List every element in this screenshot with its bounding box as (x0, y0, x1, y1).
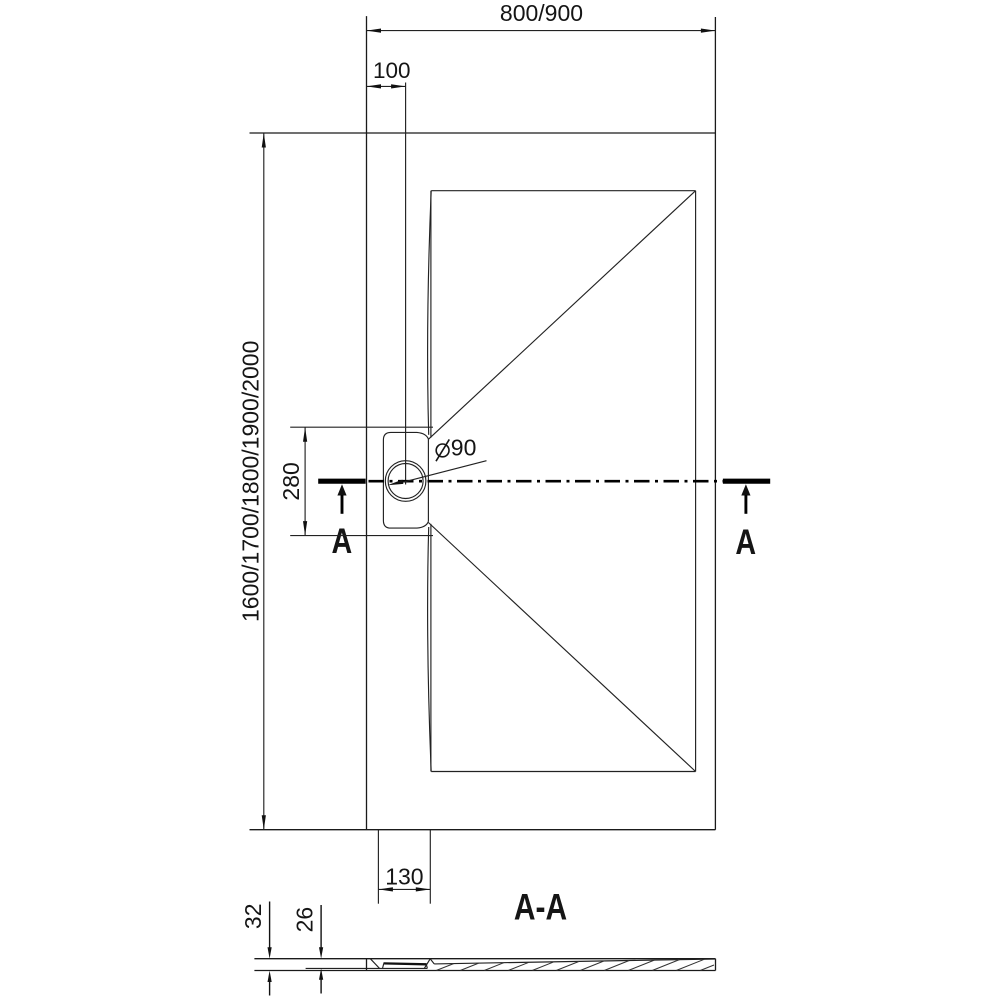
svg-text:32: 32 (240, 904, 266, 930)
svg-text:100: 100 (373, 58, 411, 83)
svg-text:1600/1700/1800/1900/2000: 1600/1700/1800/1900/2000 (238, 341, 264, 622)
svg-text:130: 130 (385, 863, 423, 889)
svg-text:800/900: 800/900 (500, 0, 583, 26)
svg-text:90: 90 (451, 434, 477, 460)
svg-text:26: 26 (292, 907, 318, 933)
svg-text:A: A (735, 522, 756, 561)
svg-text:280: 280 (278, 462, 304, 500)
svg-text:A: A (331, 521, 352, 560)
svg-text:A-A: A-A (514, 886, 567, 928)
